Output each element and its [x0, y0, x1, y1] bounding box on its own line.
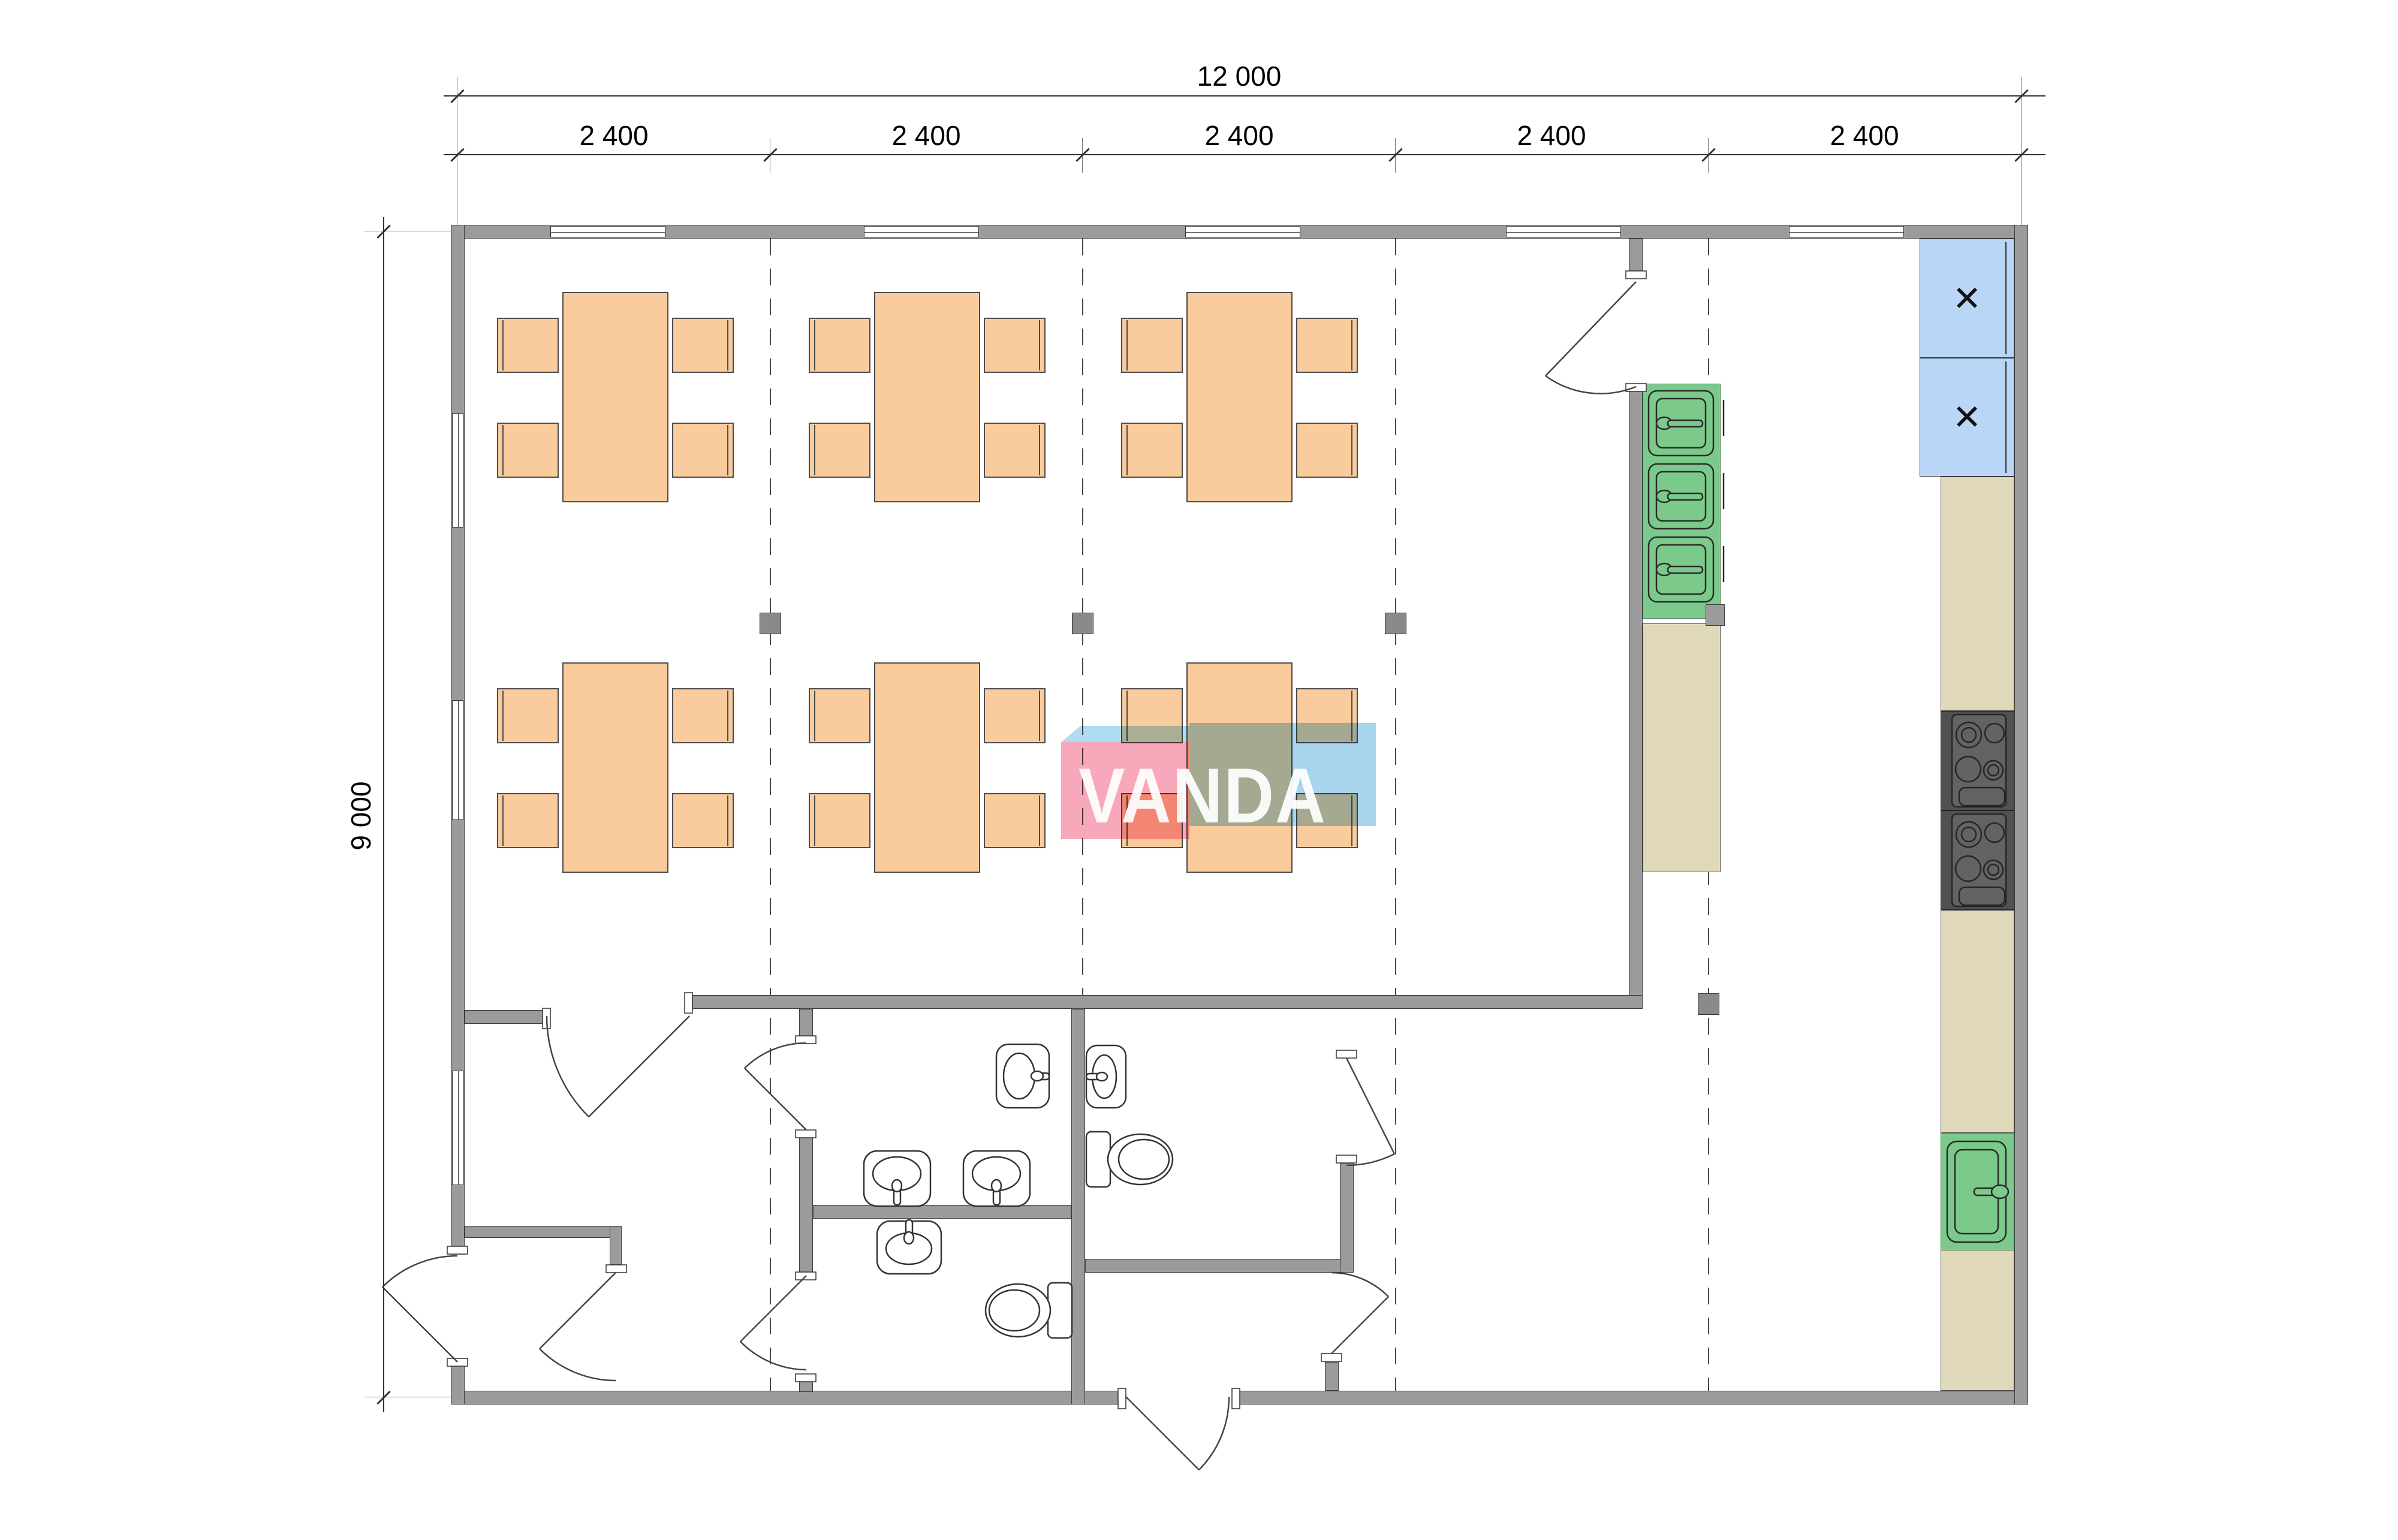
dimension-label-bay-2: 2 400 [872, 119, 980, 152]
dimension-label-bay-4: 2 400 [1498, 119, 1605, 152]
dimension-label-bay-3: 2 400 [1185, 119, 1293, 152]
dimension-label-bay-1: 2 400 [560, 119, 668, 152]
door-jambs [447, 271, 1646, 1409]
dimension-line-total-width [444, 95, 2045, 97]
dimension-label-total-height: 9 000 [345, 768, 372, 864]
dimension-line-bays [444, 154, 2045, 155]
floor-plan-canvas: 12 000 2 400 2 400 2 400 2 400 2 400 9 0… [0, 0, 2398, 1540]
stove-burners-icon [1952, 715, 2006, 906]
dimension-label-total-width: 12 000 [1149, 60, 1329, 92]
watermark-logo: VANDA [1071, 751, 1334, 840]
wall-sink-icon [1947, 1141, 2008, 1242]
kitchen-sink-icon [1649, 391, 1724, 602]
logo-box-top-face [1061, 726, 1189, 742]
dimension-line-height [383, 217, 384, 1412]
dimension-label-bay-5: 2 400 [1810, 119, 1918, 152]
